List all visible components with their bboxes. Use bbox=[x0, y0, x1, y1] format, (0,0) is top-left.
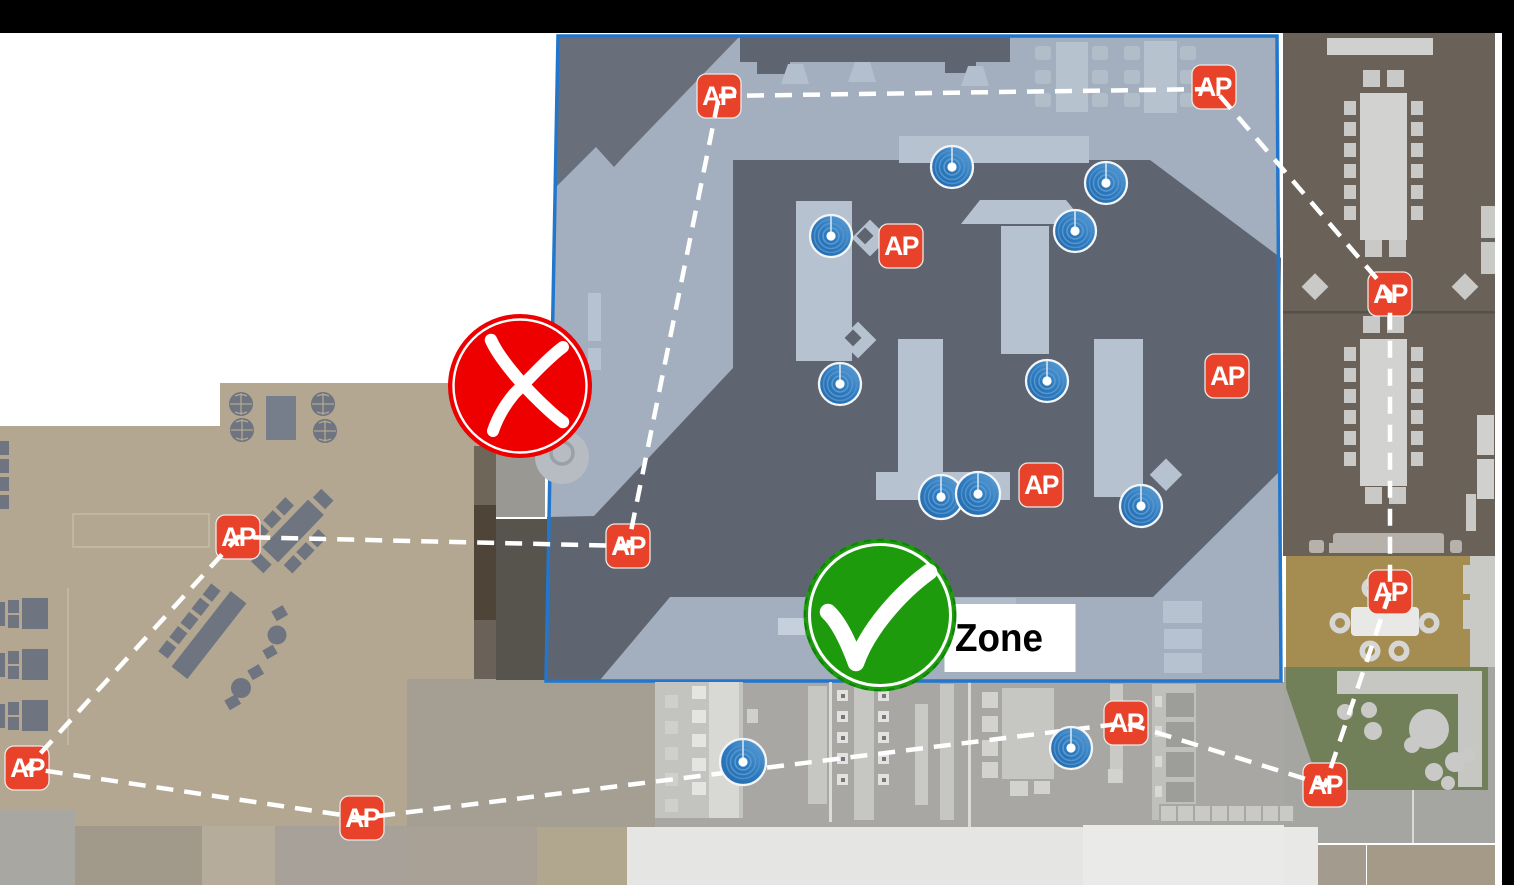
svg-text:AP: AP bbox=[1024, 470, 1059, 500]
svg-text:AP: AP bbox=[1210, 361, 1245, 391]
svg-text:AP: AP bbox=[884, 231, 919, 261]
svg-text:Zone: Zone bbox=[955, 617, 1043, 660]
